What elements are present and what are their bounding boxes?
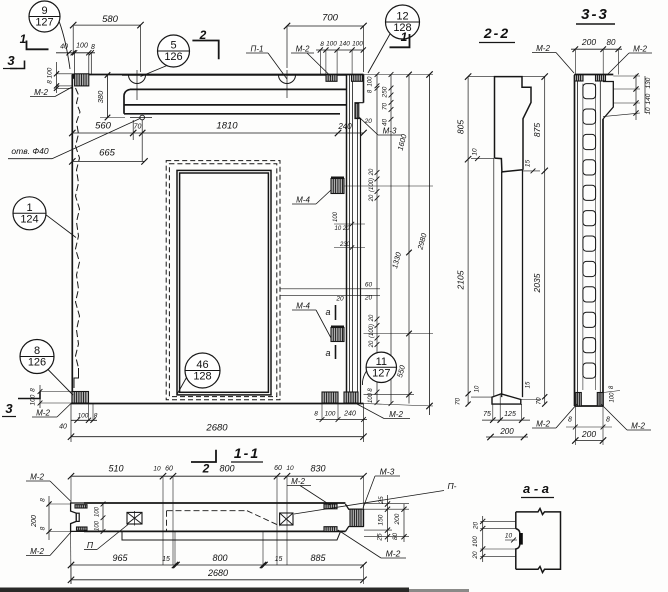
svg-text:60: 60 [365, 282, 373, 289]
svg-text:3: 3 [5, 401, 13, 416]
svg-text:100: 100 [76, 42, 88, 49]
svg-text:580: 580 [102, 14, 119, 25]
svg-text:560: 560 [95, 121, 112, 132]
svg-text:124: 124 [20, 213, 38, 225]
svg-text:20: 20 [369, 168, 375, 176]
svg-text:46: 46 [196, 359, 208, 371]
svg-text:80: 80 [607, 38, 616, 47]
svg-text:1810: 1810 [216, 121, 238, 132]
svg-text:8: 8 [47, 80, 54, 84]
svg-text:10: 10 [286, 465, 294, 472]
svg-text:15: 15 [525, 160, 532, 168]
svg-text:8: 8 [40, 526, 47, 530]
svg-text:150: 150 [378, 514, 385, 525]
svg-text:885: 885 [310, 553, 326, 563]
svg-text:100: 100 [352, 41, 363, 48]
svg-text:10 20: 10 20 [334, 226, 350, 232]
svg-text:М-2: М-2 [631, 422, 645, 431]
svg-text:а: а [325, 348, 330, 358]
svg-text:(100): (100) [369, 324, 375, 338]
svg-text:100: 100 [325, 411, 336, 418]
svg-text:230: 230 [339, 242, 351, 248]
svg-text:20: 20 [473, 522, 480, 531]
svg-text:8: 8 [320, 41, 324, 48]
svg-text:100: 100 [95, 506, 101, 517]
svg-text:М-2: М-2 [633, 45, 647, 54]
svg-text:отв. Ф40: отв. Ф40 [11, 146, 48, 156]
svg-text:М-2: М-2 [536, 420, 550, 429]
svg-text:(100): (100) [369, 178, 375, 192]
svg-text:100: 100 [472, 536, 479, 547]
svg-text:10: 10 [505, 533, 513, 540]
svg-text:25: 25 [377, 533, 384, 542]
svg-text:П-: П- [448, 481, 457, 491]
svg-text:а - а: а - а [523, 481, 549, 496]
svg-text:20: 20 [472, 551, 479, 560]
svg-text:70: 70 [134, 124, 142, 131]
svg-text:800: 800 [212, 553, 227, 563]
svg-text:100: 100 [610, 392, 616, 403]
svg-text:20: 20 [335, 296, 344, 303]
svg-text:П: П [87, 540, 94, 550]
svg-text:15: 15 [275, 556, 283, 563]
svg-text:830: 830 [310, 464, 325, 474]
svg-text:25: 25 [378, 496, 385, 505]
svg-text:20: 20 [364, 118, 373, 125]
svg-text:1: 1 [401, 30, 408, 44]
svg-text:10: 10 [472, 148, 479, 156]
svg-text:127: 127 [35, 17, 53, 29]
svg-text:8: 8 [30, 388, 37, 392]
svg-text:М-2: М-2 [36, 409, 50, 418]
svg-text:М-2: М-2 [30, 547, 44, 556]
svg-text:40: 40 [59, 424, 67, 431]
svg-text:15: 15 [526, 381, 532, 388]
svg-text:100: 100 [47, 67, 54, 78]
svg-text:8: 8 [40, 498, 47, 502]
svg-text:8: 8 [94, 413, 98, 420]
svg-text:9: 9 [41, 5, 47, 17]
svg-text:510: 510 [108, 464, 123, 474]
svg-text:60: 60 [165, 466, 173, 473]
svg-text:2-2: 2-2 [483, 25, 510, 41]
svg-text:М-2: М-2 [34, 88, 48, 97]
svg-text:130: 130 [645, 77, 652, 88]
svg-text:а: а [325, 307, 330, 317]
svg-text:М-2: М-2 [30, 473, 44, 482]
svg-text:3-3: 3-3 [581, 6, 609, 23]
svg-text:12: 12 [396, 11, 408, 23]
svg-text:250: 250 [382, 86, 389, 98]
svg-text:70: 70 [382, 103, 389, 111]
svg-text:8: 8 [568, 417, 572, 424]
svg-text:75: 75 [483, 411, 491, 418]
svg-text:200: 200 [394, 513, 401, 525]
svg-text:60: 60 [274, 465, 282, 472]
svg-text:8: 8 [606, 417, 610, 424]
svg-text:М-2: М-2 [389, 410, 403, 419]
svg-text:100: 100 [326, 41, 337, 48]
svg-text:20: 20 [364, 295, 373, 302]
svg-text:40: 40 [382, 119, 389, 127]
svg-text:140: 140 [645, 93, 652, 104]
svg-text:965: 965 [112, 553, 128, 563]
svg-text:М-2: М-2 [291, 477, 305, 486]
svg-text:128: 128 [193, 371, 211, 383]
svg-text:200: 200 [31, 515, 38, 528]
svg-text:1-1: 1-1 [234, 445, 260, 461]
svg-text:8: 8 [34, 345, 40, 357]
svg-text:700: 700 [322, 13, 339, 24]
svg-text:100: 100 [368, 392, 374, 403]
svg-text:8: 8 [314, 411, 318, 418]
svg-text:10: 10 [474, 385, 480, 392]
svg-text:М-3: М-3 [380, 467, 395, 477]
svg-text:М-2: М-2 [386, 549, 401, 559]
svg-text:380: 380 [96, 90, 105, 103]
svg-text:100: 100 [95, 520, 101, 531]
svg-text:11: 11 [376, 356, 387, 368]
svg-text:П-1: П-1 [251, 45, 264, 54]
svg-text:1: 1 [26, 202, 32, 214]
svg-text:2035: 2035 [532, 273, 542, 293]
svg-text:126: 126 [164, 51, 182, 63]
svg-text:М-4: М-4 [296, 196, 310, 205]
svg-text:15: 15 [162, 556, 170, 563]
svg-text:20: 20 [369, 194, 375, 202]
svg-text:70: 70 [455, 398, 462, 406]
svg-text:3: 3 [7, 53, 15, 68]
svg-text:М-2: М-2 [536, 44, 550, 53]
svg-text:10: 10 [645, 107, 652, 115]
svg-text:200: 200 [581, 37, 596, 47]
svg-text:20: 20 [369, 314, 375, 322]
svg-text:875: 875 [532, 123, 542, 137]
svg-text:665: 665 [99, 148, 116, 159]
svg-text:140: 140 [339, 41, 350, 48]
svg-text:2680: 2680 [205, 423, 228, 434]
svg-text:100: 100 [30, 394, 37, 405]
svg-text:70: 70 [536, 397, 543, 405]
svg-text:200: 200 [581, 429, 596, 439]
svg-text:2680: 2680 [207, 568, 228, 578]
svg-text:М-3: М-3 [383, 127, 397, 136]
svg-text:М-2: М-2 [296, 45, 310, 54]
svg-text:8: 8 [91, 44, 95, 51]
svg-text:100: 100 [368, 76, 374, 87]
svg-text:20: 20 [369, 340, 375, 348]
svg-text:125: 125 [504, 411, 516, 418]
svg-text:100: 100 [333, 211, 339, 222]
svg-text:2105: 2105 [456, 270, 466, 290]
svg-text:240: 240 [343, 411, 356, 418]
svg-text:805: 805 [456, 120, 466, 134]
svg-text:240: 240 [337, 122, 352, 131]
svg-text:5: 5 [170, 40, 176, 52]
svg-text:200: 200 [499, 427, 514, 436]
svg-text:126: 126 [28, 357, 46, 369]
svg-text:80: 80 [392, 533, 399, 541]
svg-text:100: 100 [78, 413, 89, 420]
svg-text:127: 127 [372, 367, 390, 379]
svg-text:М-4: М-4 [296, 302, 310, 311]
svg-text:2: 2 [202, 462, 210, 476]
svg-text:10: 10 [153, 466, 161, 473]
svg-text:800: 800 [219, 464, 234, 474]
